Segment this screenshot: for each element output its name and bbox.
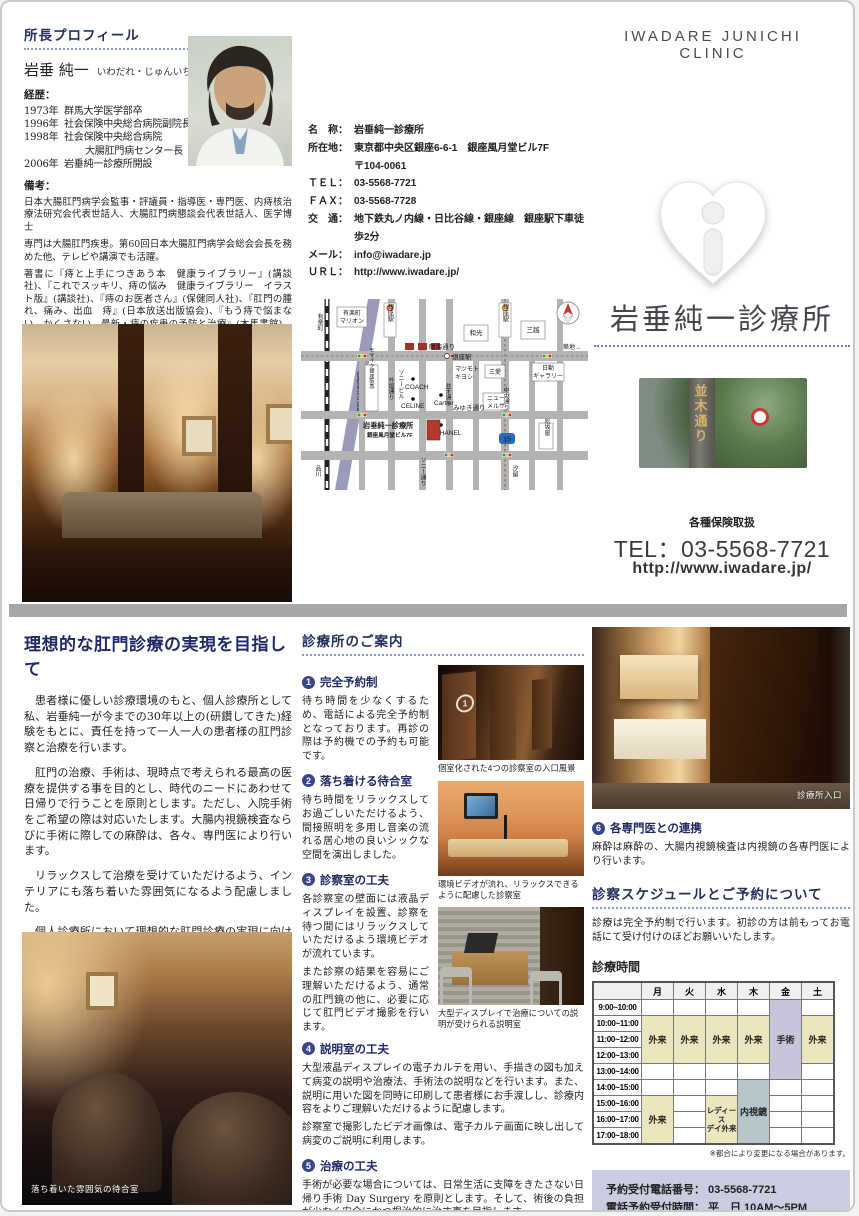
reservation-hours-weekday: 平 日 10AM～5PM — [708, 1199, 807, 1212]
waiting-room-photo: 落ち着いた雰囲気の待合室 — [22, 932, 292, 1205]
career-row: 1996年社会保険中央総合病院副院長 — [24, 118, 196, 131]
door-number: 1 — [456, 693, 474, 713]
reservation-hours-row: 電話予約受付時間： 平 日 10AM～5PM — [606, 1199, 842, 1212]
compass-icon — [557, 302, 579, 324]
map-label-clinic: 岩垂純一診療所 — [362, 421, 414, 430]
contact-row: ＵＲＬ：http://www.iwadare.jp/ — [308, 264, 593, 282]
logo-i-stem — [704, 229, 722, 275]
guide-section-body: 診察室で撮影したビデオ画像は、電子カルテ画面に映し出して病変のご説明に利用します… — [302, 1121, 584, 1149]
guide-section-1: 1完全予約制 待ち時間を少なくするため、電話による完全予約制となっております。再… — [302, 674, 429, 764]
guide-photo-figure: 環境ビデオが流れ、リラックスできるように配慮した診察室 — [438, 781, 584, 901]
contact-row: ＦＡＸ：03-5568-7728 — [308, 193, 593, 211]
time-cell: 12:00~13:00 — [593, 1048, 642, 1064]
guide-section-title: 落ち着ける待合室 — [320, 773, 412, 789]
street-sign-post: 並木通り — [689, 378, 715, 468]
guide-section-5: 5治療の工夫 手術が必要な場合については、日常生活に支障をきたさない日帰り手術 … — [302, 1158, 584, 1212]
day-header: 火 — [674, 982, 706, 1000]
consultation-hours-table: 月 火 水 木 金 土 9:00~10:00 手術 10:00~11:00 外来… — [592, 981, 835, 1145]
map-label-matsukiyo: マツモト — [455, 366, 479, 373]
chair — [530, 971, 562, 1005]
map-label-marion: マリオン — [340, 318, 364, 325]
exam-room-door — [532, 678, 552, 750]
table-row: 9:00~10:00 手術 — [593, 1000, 834, 1016]
map-label-tsukiji: 築地→ — [563, 343, 581, 351]
time-cell: 11:00~12:00 — [593, 1032, 642, 1048]
corner-cell — [593, 982, 642, 1000]
director-name-text: 岩垂 純一 — [24, 61, 89, 79]
guide-section-body: 各診察室の壁面には液晶ディスプレイを設置、診察を待つ間にはリラックスしていただけ… — [302, 893, 429, 962]
outpatient-cell: 外来 — [802, 1016, 835, 1064]
outpatient-cell: 外来 — [674, 1016, 706, 1064]
section-divider — [9, 604, 847, 617]
map-label-sony-dori: ソニー通り — [419, 457, 426, 486]
guide-photo-column: 1 個室化された4つの診察室の入口風景 環境ビデオが流れ、リラックスできるように… — [438, 665, 584, 1039]
exam-bed — [448, 839, 568, 857]
schedule-note: ※都合により変更になる場合があります。 — [592, 1148, 850, 1159]
endoscopy-cell: 内視鏡 — [738, 1080, 770, 1145]
chair — [440, 967, 472, 1005]
contact-row: 所在地：東京都中央区銀座6-6-1 銀座風月堂ビル7F — [308, 140, 593, 158]
map-label-sony-building: ソニービル — [397, 369, 404, 399]
surgery-cell: 手術 — [770, 1000, 802, 1080]
svg-text:15: 15 — [503, 437, 511, 444]
map-label-matsukiyo: キヨシ — [455, 374, 473, 381]
guide-section-body: 待ち時間を少なくするため、電話による完全予約制となっております。再診の際は予約機… — [302, 695, 429, 764]
contact-info: 名 称：岩垂純一診療所 所在地：東京都中央区銀座6-6-1 銀座風月堂ビル7F … — [308, 122, 593, 282]
waiting-lounge-photo — [22, 324, 292, 602]
clinic-guide: 診療所のご案内 1完全予約制 待ち時間を少なくするため、電話による完全予約制とな… — [302, 630, 584, 1212]
director-name-kana: いわだれ・じゅんいち — [97, 67, 192, 78]
photo-caption: 落ち着いた雰囲気の待合室 — [31, 1183, 139, 1195]
exam-room-door — [490, 672, 516, 760]
day-header: 水 — [706, 982, 738, 1000]
director-portrait-illustration — [188, 36, 292, 166]
article-paragraph: 肛門の治療、手術は、現時点で考えられる最高の医療を提供する事を目的とし、時代のニ… — [24, 765, 292, 859]
section-number-icon: 5 — [302, 1159, 315, 1172]
article-title: 理想的な肛門診療の実現を目指して — [24, 630, 292, 680]
wall-tv — [464, 793, 498, 819]
photo-caption: 環境ビデオが流れ、リラックスできるように配慮した診察室 — [438, 879, 584, 901]
guide-section-title: 治療の工夫 — [320, 1158, 378, 1174]
explanation-room-photo — [438, 907, 584, 1005]
exam-room-photo — [438, 781, 584, 876]
map-label-marion: 有楽町 — [343, 309, 361, 317]
guide-section-body: 麻酔は麻酔の、大腸内視鏡検査は内視鏡の各専門医により行います。 — [592, 841, 850, 869]
notes-paragraph: 日本大腸肛門病学会監事・評議員・指導医・専門医、内痔核治療法研究会代表世話人、大… — [24, 197, 292, 234]
map-label-ginza-station: 銀座駅 — [502, 303, 509, 323]
exam-room-door: 1 — [442, 671, 476, 760]
wall-frame — [86, 972, 118, 1010]
guide-heading: 診療所のご案内 — [302, 630, 584, 656]
photo-caption: 大型ディスプレイで治療についての説明が受けられる説明室 — [438, 1008, 584, 1030]
reservation-tel: 03-5568-7721 — [708, 1181, 777, 1199]
hours-table-title: 診療時間 — [592, 958, 850, 975]
ladies-day-cell: レディース デイ外来 — [706, 1096, 738, 1145]
guide-section-title: 完全予約制 — [320, 674, 378, 690]
day-header: 土 — [802, 982, 835, 1000]
tel-value: 03-5568-7721 — [354, 175, 416, 193]
heart-logo — [650, 170, 776, 298]
map-label-shinagawa: 品川 — [314, 465, 321, 477]
map-label-ginza-station: 銀座駅 — [452, 352, 472, 361]
outpatient-cell: 外来 — [738, 1016, 770, 1064]
map-label-sotobori-dori: 外堀通り — [387, 376, 394, 400]
outpatient-cell: 外来 — [642, 1016, 674, 1064]
map-label-chuo-dori: 中央通り — [502, 386, 509, 410]
contact-row: ＴＥＬ：03-5568-7721 — [308, 175, 593, 193]
route-15-shield: 15 — [499, 433, 515, 444]
fax-value: 03-5568-7728 — [354, 193, 416, 211]
entrance-door — [710, 627, 818, 799]
lit-cabinet — [614, 719, 706, 759]
time-cell: 17:00~18:00 — [593, 1128, 642, 1145]
display-shelf — [620, 655, 698, 699]
guide-section-title: 説明室の工夫 — [320, 1041, 389, 1057]
guide-photo-figure: 大型ディスプレイで治療についての説明が受けられる説明室 — [438, 907, 584, 1030]
outpatient-cell: 外来 — [642, 1096, 674, 1145]
map-label-miyuki-dori: みゆき通り — [453, 403, 486, 412]
map-label-clinic-building: 銀座風月堂ビル7F — [367, 431, 413, 439]
table-row: 14:00~15:00 内視鏡 — [593, 1080, 834, 1096]
career-row: 大腸肛門病センター長 — [24, 145, 196, 158]
guide-section-title: 診察室の工夫 — [320, 872, 389, 888]
guide-section-3: 3診察室の工夫 各診察室の壁面には液晶ディスプレイを設置、診察を待つ間にはリラッ… — [302, 872, 429, 1035]
director-photo — [188, 36, 292, 166]
table-row: 15:00~16:00 外来 レディース デイ外来 — [593, 1096, 834, 1112]
map-label-cartier: Cartier — [434, 400, 454, 407]
brand-url: http://www.iwadare.jp/ — [592, 560, 852, 578]
wall-frame — [266, 404, 292, 444]
day-header: 金 — [770, 982, 802, 1000]
logo-i-dot — [702, 202, 724, 224]
map-label-ginza-station: 銀座駅 — [387, 303, 394, 323]
contact-row: 〒104-0061 — [308, 158, 593, 176]
clinic-name-value: 岩垂純一診療所 — [354, 122, 424, 140]
guide-photo-figure: 1 個室化された4つの診察室の入口風景 — [438, 665, 584, 774]
notes-label: 備考： — [24, 178, 292, 193]
map-label-wako: 和光 — [470, 328, 484, 337]
guide-section-title: 各専門医との連携 — [610, 820, 702, 836]
guide-section-body: 大型液晶ディスプレイの電子カルテを用い、手描きの図も加えて病変の説明や治療法、手… — [302, 1062, 584, 1117]
day-header: 月 — [642, 982, 674, 1000]
map-label-nichido: 日動 — [542, 364, 554, 372]
career-row: 1973年群馬大学医学部卒 — [24, 105, 196, 118]
section-number-icon: 2 — [302, 774, 315, 787]
street-sign-text: 並木通り — [695, 384, 710, 444]
map-label-nichido: ギャラリー — [533, 373, 563, 380]
access-value: 地下鉄丸ノ内線・日比谷線・銀座線 銀座駅下車徒歩2分 — [354, 211, 593, 247]
day-header: 木 — [738, 982, 770, 1000]
career-list: 1973年群馬大学医学部卒 1996年社会保険中央総合病院副院長 1998年社会… — [24, 105, 196, 171]
reservation-box: 予約受付電話番号： 03-5568-7721 電話予約受付時間： 平 日 10A… — [592, 1170, 850, 1212]
brand-header: IWADARE JUNICHI CLINIC — [590, 28, 836, 62]
time-cell: 13:00~14:00 — [593, 1064, 642, 1080]
section-number-icon: 6 — [592, 822, 605, 835]
clinic-marker: 岩垂純一診療所 銀座風月堂ビル7F — [362, 420, 440, 440]
map-label-yurakucho: 有楽町 — [316, 312, 323, 331]
guide-section-body: 待ち時間をリラックスしてお過ごしいただけるよう、間接照明を多用し音楽の流れる居心… — [302, 794, 429, 863]
time-cell: 14:00~15:00 — [593, 1080, 642, 1096]
guide-section-2: 2落ち着ける待合室 待ち時間をリラックスしてお過ごしいただけるよう、間接照明を多… — [302, 773, 429, 863]
map-label-mitsukoshi: 三越 — [527, 325, 541, 334]
schedule-heading: 診察スケジュールとご予約について — [592, 883, 850, 909]
map-label-harumi-dori: 晴海通り — [429, 342, 455, 351]
lamp — [504, 815, 507, 839]
time-cell: 16:00~17:00 — [593, 1112, 642, 1128]
time-cell: 15:00~16:00 — [593, 1096, 642, 1112]
insurance-note: 各種保険取扱 — [592, 514, 852, 530]
guide-section-body: また診察の結果を容易にご理解いただけるよう、通常の肛門鏡の他に、必要に応じて肛門… — [302, 966, 429, 1035]
contact-row: メール：info@iwadare.jp — [308, 247, 593, 265]
clinic-name: 岩垂純一診療所 — [594, 296, 850, 347]
exam-rooms-corridor-photo: 1 — [438, 665, 584, 760]
namiki-street-photo: 並木通り — [639, 378, 807, 468]
armchair — [172, 1092, 292, 1205]
outpatient-cell: 外来 — [706, 1016, 738, 1064]
laptop — [464, 933, 498, 953]
brand-tel: TEL：03-5568-7721 — [592, 530, 852, 564]
map-label-sanai: 三愛 — [489, 368, 501, 376]
article-paragraph: 患者様に優しい診療環境のもと、個人診療所として私、岩垂純一が今までの30年以上の… — [24, 693, 292, 756]
notes-paragraph: 専門は大腸肛門疾患。第60回日本大腸肛門病学会総会会長を務めた他、テレビや講演で… — [24, 239, 292, 264]
entrance-photo: 診療所入口 — [592, 627, 850, 809]
wall-frame — [182, 416, 216, 456]
email-value: info@iwadare.jp — [354, 247, 431, 265]
map-label-matsuzakaya: 松坂屋 — [543, 417, 550, 437]
photo-caption: 個室化された4つの診察室の入口風景 — [438, 763, 584, 774]
career-row: 1998年社会保険中央総合病院 — [24, 131, 196, 144]
section-number-icon: 3 — [302, 873, 315, 886]
address-value: 東京都中央区銀座6-6-1 銀座風月堂ビル7F — [354, 140, 549, 158]
map-label-mosaic: モザイク銀座阪急 — [369, 347, 375, 389]
map-label-coach: COACH — [405, 384, 429, 391]
area-map: 首都高速の連絡線 — [301, 299, 588, 490]
guide-section-6: 6各専門医との連携 麻酔は麻酔の、大腸内視鏡検査は内視鏡の各専門医により行います… — [592, 820, 850, 869]
reservation-tel-row: 予約受付電話番号： 03-5568-7721 — [606, 1181, 842, 1199]
photo-caption: 診療所入口 — [797, 789, 842, 801]
brochure-page: 所長プロフィール 岩垂 純一いわだれ・じゅんいち 経歴： 1973年群馬大学医学… — [0, 0, 855, 1212]
guide-section-4: 4説明室の工夫 大型液晶ディスプレイの電子カルテを用い、手描きの図も加えて病変の… — [302, 1041, 584, 1149]
time-cell: 10:00~11:00 — [593, 1016, 642, 1032]
map-label-celine: CELINE — [401, 403, 425, 410]
guide-text-column: 1完全予約制 待ち時間を少なくするため、電話による完全予約制となっております。再… — [302, 665, 429, 1039]
zip-value: 〒104-0061 — [354, 158, 406, 176]
profile-section: 所長プロフィール 岩垂 純一いわだれ・じゅんいち 経歴： 1973年群馬大学医学… — [24, 24, 292, 373]
road-sign-icon — [751, 408, 769, 426]
url-value: http://www.iwadare.jp/ — [354, 264, 459, 282]
schedule-column: 診療所入口 6各専門医との連携 麻酔は麻酔の、大腸内視鏡検査は内視鏡の各専門医に… — [592, 627, 850, 1212]
article-paragraph: リラックスして治療を受けていただけるよう、インテリアにも落ち着いた雰囲気になるよ… — [24, 868, 292, 915]
guide-section-body: 手術が必要な場合については、日常生活に支障をきたさない日帰り手術 Day Sur… — [302, 1179, 584, 1212]
career-row: 2006年岩垂純一診療所開設 — [24, 158, 196, 171]
section-number-icon: 4 — [302, 1042, 315, 1055]
contact-row: 名 称：岩垂純一診療所 — [308, 122, 593, 140]
sofa — [62, 492, 262, 538]
time-cell: 9:00~10:00 — [593, 1000, 642, 1016]
armchair — [52, 1072, 162, 1192]
schedule-intro: 診療は完全予約制で行います。初診の方は前もってお電話にて受け付けのほどお願いいた… — [592, 917, 850, 945]
table-header-row: 月 火 水 木 金 土 — [593, 982, 834, 1000]
map-label-shiodome: 汐留 — [511, 464, 518, 478]
contact-row: 交 通：地下鉄丸ノ内線・日比谷線・銀座線 銀座駅下車徒歩2分 — [308, 211, 593, 247]
section-number-icon: 1 — [302, 676, 315, 689]
